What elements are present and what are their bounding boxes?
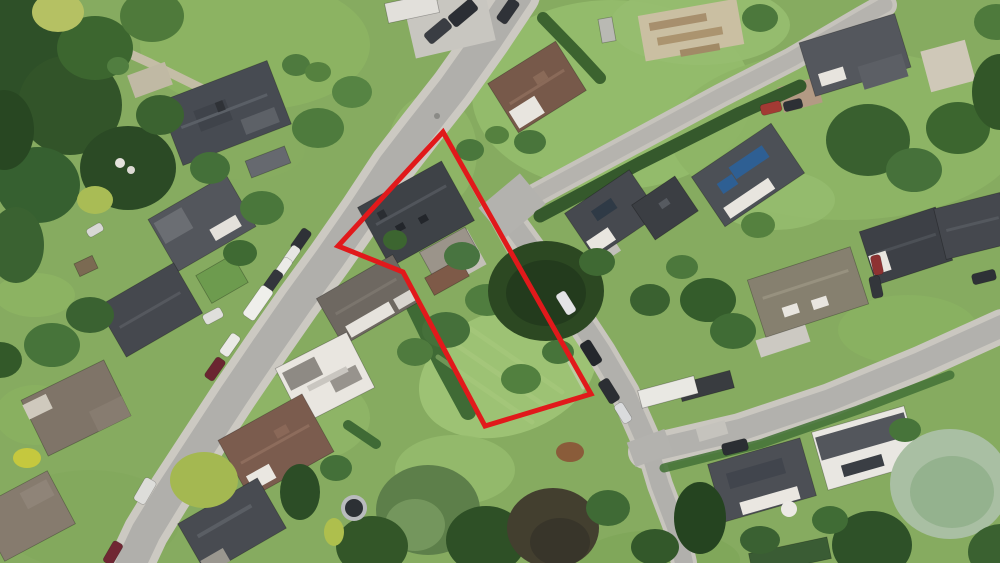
tree-canopy bbox=[710, 313, 756, 349]
tree-canopy bbox=[501, 364, 541, 394]
tree-canopy bbox=[107, 57, 129, 75]
tree-canopy bbox=[556, 442, 584, 462]
tree-canopy bbox=[666, 255, 698, 279]
tree-canopy bbox=[190, 152, 230, 184]
tree-canopy bbox=[586, 490, 630, 526]
tree-canopy bbox=[886, 148, 942, 192]
tree-canopy bbox=[223, 240, 257, 266]
tree-canopy bbox=[444, 242, 480, 270]
tree-canopy bbox=[579, 248, 615, 276]
garden-object bbox=[434, 113, 440, 119]
tree-canopy bbox=[674, 482, 726, 554]
tree-canopy bbox=[240, 191, 284, 225]
tree-canopy bbox=[13, 448, 41, 468]
tree-canopy bbox=[332, 76, 372, 108]
tree-canopy bbox=[66, 297, 114, 333]
tree-canopy bbox=[77, 186, 113, 214]
tree-canopy bbox=[910, 456, 994, 528]
tree-canopy bbox=[812, 506, 848, 534]
tree-canopy bbox=[485, 126, 509, 144]
tree-canopy bbox=[280, 464, 320, 520]
tree-canopy bbox=[320, 455, 352, 481]
tree-canopy bbox=[324, 518, 344, 546]
tree-canopy bbox=[514, 130, 546, 154]
aerial-photo-container: Aerial photograph of a suburban resident… bbox=[0, 0, 1000, 563]
garden-object bbox=[115, 158, 125, 168]
tree-canopy bbox=[397, 338, 433, 366]
tree-canopy bbox=[136, 95, 184, 135]
tree-canopy bbox=[742, 4, 778, 32]
tree-canopy bbox=[383, 230, 407, 250]
tree-canopy bbox=[305, 62, 331, 82]
aerial-photo bbox=[0, 0, 1000, 563]
garden-object bbox=[345, 499, 363, 517]
tree-canopy bbox=[740, 526, 780, 554]
tree-canopy bbox=[24, 323, 80, 367]
garden-object bbox=[127, 166, 135, 174]
tree-canopy bbox=[741, 212, 775, 238]
tree-canopy bbox=[889, 418, 921, 442]
tree-canopy bbox=[630, 284, 670, 316]
tree-canopy bbox=[170, 452, 238, 508]
tree-canopy bbox=[292, 108, 344, 148]
garden-object bbox=[781, 501, 797, 517]
